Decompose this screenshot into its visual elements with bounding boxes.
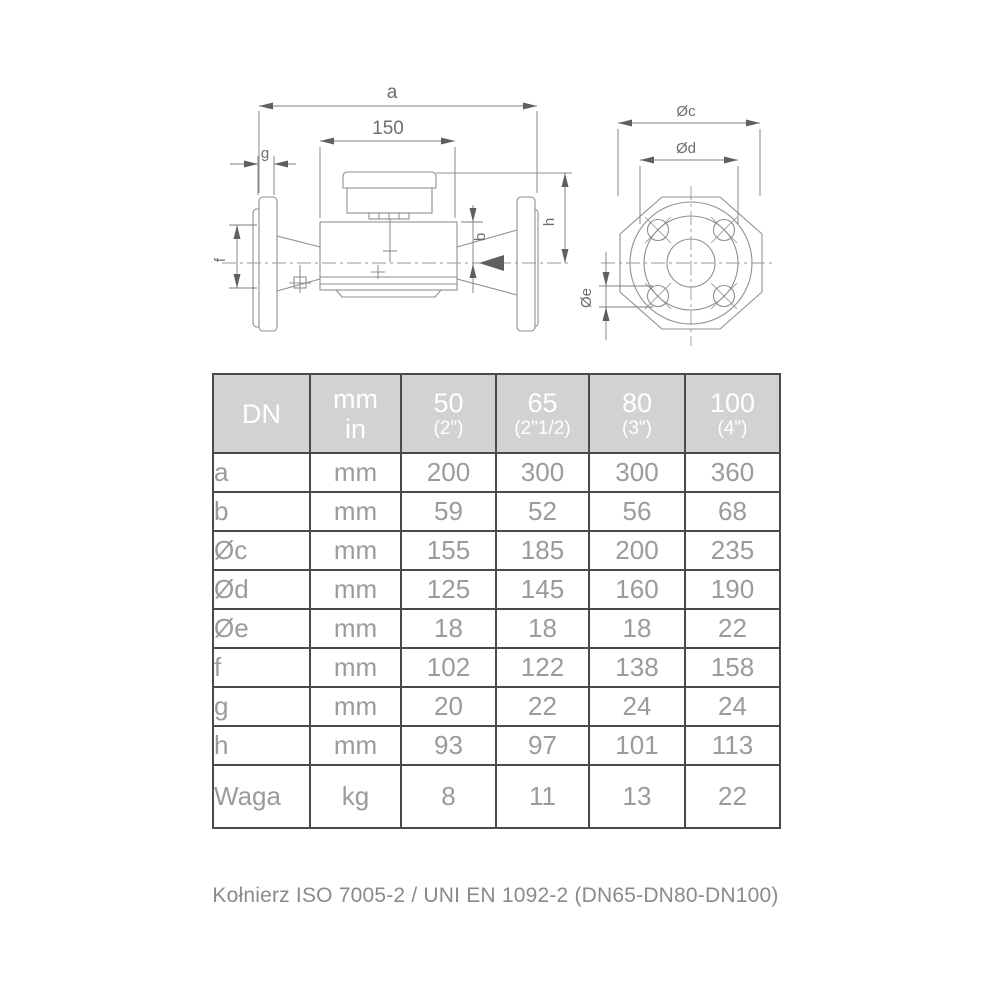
header-dn50: 50 (2") — [401, 374, 496, 453]
row-label: a — [213, 453, 310, 492]
drain-plug-cross — [289, 265, 311, 293]
row-label: b — [213, 492, 310, 531]
dim-label-oe: Øe — [578, 288, 595, 308]
row-value: 200 — [589, 531, 685, 570]
row-value: 158 — [685, 648, 780, 687]
dim-label-b: b — [472, 233, 489, 241]
header-dn65-value: 65 — [497, 388, 588, 418]
meter-side-view — [253, 172, 572, 331]
technical-drawing: a 150 g f b h — [200, 60, 820, 370]
register-body — [347, 188, 432, 213]
table-row-b: b mm 59 52 56 68 — [213, 492, 780, 531]
register-cap — [343, 172, 436, 188]
row-value: 56 — [589, 492, 685, 531]
row-value: 68 — [685, 492, 780, 531]
datasheet-page: a 150 g f b h — [0, 0, 1000, 1000]
table-row-oe: Øe mm 18 18 18 22 — [213, 609, 780, 648]
left-cone-top — [277, 236, 320, 247]
header-unit: mm in — [310, 374, 401, 453]
register-connector-teeth — [379, 213, 399, 219]
header-dn100-value: 100 — [686, 388, 779, 418]
table-row-waga: Waga kg 8 11 13 22 — [213, 765, 780, 828]
table-row-h: h mm 93 97 101 113 — [213, 726, 780, 765]
row-value: 122 — [496, 648, 589, 687]
header-dn80-inch: (3") — [590, 418, 684, 440]
dim-label-g: g — [261, 145, 269, 162]
flange-standard-note: Kołnierz ISO 7005-2 / UNI EN 1092-2 (DN6… — [212, 884, 779, 908]
row-unit: mm — [310, 492, 401, 531]
row-unit: mm — [310, 687, 401, 726]
row-value: 113 — [685, 726, 780, 765]
header-dn100-inch: (4") — [686, 418, 779, 440]
row-label: h — [213, 726, 310, 765]
row-value: 24 — [685, 687, 780, 726]
header-dn50-inch: (2") — [402, 418, 495, 440]
table-row-od: Ød mm 125 145 160 190 — [213, 570, 780, 609]
table-row-f: f mm 102 122 138 158 — [213, 648, 780, 687]
header-dn65: 65 (2"1/2) — [496, 374, 589, 453]
row-value: 22 — [496, 687, 589, 726]
row-value: 145 — [496, 570, 589, 609]
header-unit-in: in — [311, 414, 400, 444]
row-value: 20 — [401, 687, 496, 726]
row-value: 24 — [589, 687, 685, 726]
row-value: 93 — [401, 726, 496, 765]
row-unit: mm — [310, 726, 401, 765]
row-value: 125 — [401, 570, 496, 609]
row-label: g — [213, 687, 310, 726]
row-value: 97 — [496, 726, 589, 765]
dim-label-od: Ød — [676, 140, 696, 157]
right-flange — [517, 197, 535, 331]
row-value: 11 — [496, 765, 589, 828]
row-value: 18 — [589, 609, 685, 648]
row-value: 52 — [496, 492, 589, 531]
row-label: Ød — [213, 570, 310, 609]
header-dn80: 80 (3") — [589, 374, 685, 453]
left-cone-bottom — [277, 279, 320, 291]
header-dn50-value: 50 — [402, 388, 495, 418]
row-value: 200 — [401, 453, 496, 492]
header-dn-label: DN — [214, 399, 309, 429]
header-dn65-inch: (2"1/2) — [497, 418, 588, 440]
row-label: Øe — [213, 609, 310, 648]
row-unit: mm — [310, 531, 401, 570]
row-label: f — [213, 648, 310, 687]
row-value: 13 — [589, 765, 685, 828]
row-value: 300 — [589, 453, 685, 492]
flow-arrow — [479, 255, 504, 271]
row-value: 235 — [685, 531, 780, 570]
row-value: 138 — [589, 648, 685, 687]
row-value: 160 — [589, 570, 685, 609]
dim-label-oc: Øc — [676, 103, 696, 120]
row-value: 18 — [496, 609, 589, 648]
header-unit-mm: mm — [311, 384, 400, 414]
header-dn100: 100 (4") — [685, 374, 780, 453]
dim-label-h: h — [541, 218, 558, 226]
row-value: 101 — [589, 726, 685, 765]
row-value: 155 — [401, 531, 496, 570]
row-value: 185 — [496, 531, 589, 570]
row-value: 300 — [496, 453, 589, 492]
row-value: 59 — [401, 492, 496, 531]
left-flange — [259, 197, 277, 331]
tube-base — [336, 290, 441, 297]
table-row-oc: Øc mm 155 185 200 235 — [213, 531, 780, 570]
table-row-g: g mm 20 22 24 24 — [213, 687, 780, 726]
table-header-row: DN mm in 50 (2") 65 (2"1/2) 80 (3") — [213, 374, 780, 453]
row-unit: kg — [310, 765, 401, 828]
row-value: 18 — [401, 609, 496, 648]
row-value: 22 — [685, 765, 780, 828]
row-unit: mm — [310, 648, 401, 687]
dim-label-f: f — [212, 257, 229, 262]
header-dn80-value: 80 — [590, 388, 684, 418]
right-cone-bottom — [457, 279, 517, 295]
table-row-a: a mm 200 300 300 360 — [213, 453, 780, 492]
header-dn: DN — [213, 374, 310, 453]
row-value: 190 — [685, 570, 780, 609]
row-label: Øc — [213, 531, 310, 570]
meter-tube — [320, 222, 457, 290]
row-value: 102 — [401, 648, 496, 687]
row-value: 22 — [685, 609, 780, 648]
dim-label-a: a — [387, 82, 398, 103]
row-value: 8 — [401, 765, 496, 828]
row-unit: mm — [310, 570, 401, 609]
row-label: Waga — [213, 765, 310, 828]
dimensions-table: DN mm in 50 (2") 65 (2"1/2) 80 (3") — [212, 373, 781, 829]
dim-label-150: 150 — [372, 118, 404, 139]
row-value: 360 — [685, 453, 780, 492]
row-unit: mm — [310, 609, 401, 648]
row-unit: mm — [310, 453, 401, 492]
